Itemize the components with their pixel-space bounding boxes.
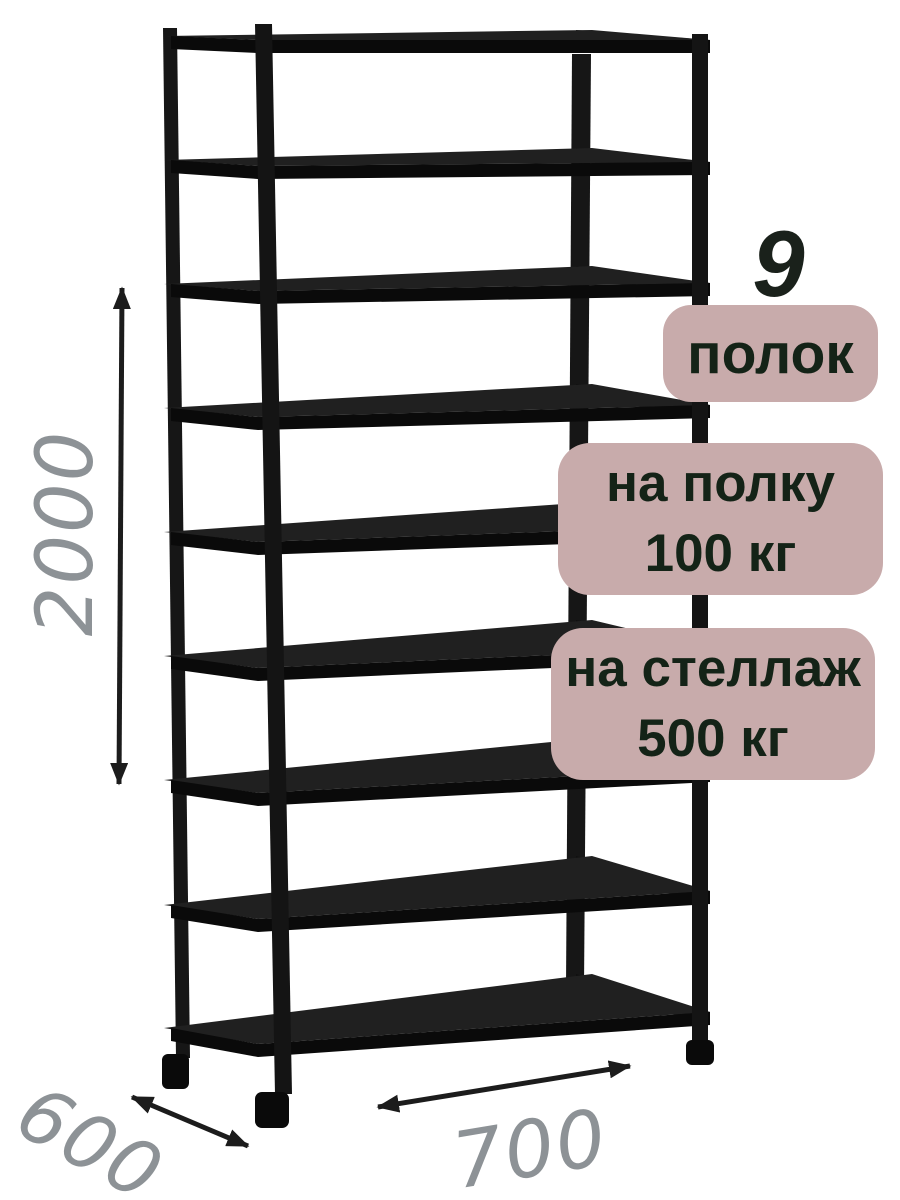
per-shelf-capacity-line1: на полку — [606, 449, 835, 519]
rack-shelf — [164, 148, 710, 179]
rack-foot-front-left — [255, 1092, 289, 1128]
per-shelf-capacity-line2: 100 кг — [645, 519, 797, 589]
per-shelf-capacity-badge: на полку 100 кг — [558, 443, 883, 595]
rack-post-front-left — [255, 24, 292, 1094]
height-dimension-label: 2000 — [27, 373, 117, 693]
product-dimension-diagram: 2000 600 700 9 полок на полку 100 кг на … — [0, 0, 900, 1200]
shelf-count-badge: полок — [663, 305, 878, 402]
shelf-count-unit: полок — [687, 321, 854, 387]
per-rack-capacity-badge: на стеллаж 500 кг — [551, 628, 875, 780]
rack-shelf — [164, 384, 710, 430]
rack-shelf — [164, 856, 710, 932]
rack-foot-front-right — [686, 1040, 714, 1065]
per-rack-capacity-line1: на стеллаж — [565, 634, 861, 704]
rack-illustration — [0, 0, 900, 1200]
rack-shelf — [164, 266, 710, 304]
rack-shelf — [164, 974, 710, 1057]
shelf-count-number: 9 — [706, 214, 851, 314]
rack-foot-back-left — [162, 1054, 189, 1089]
height-dimension-arrow — [119, 288, 122, 784]
rack-shelf — [164, 30, 710, 53]
per-rack-capacity-line2: 500 кг — [637, 704, 789, 774]
